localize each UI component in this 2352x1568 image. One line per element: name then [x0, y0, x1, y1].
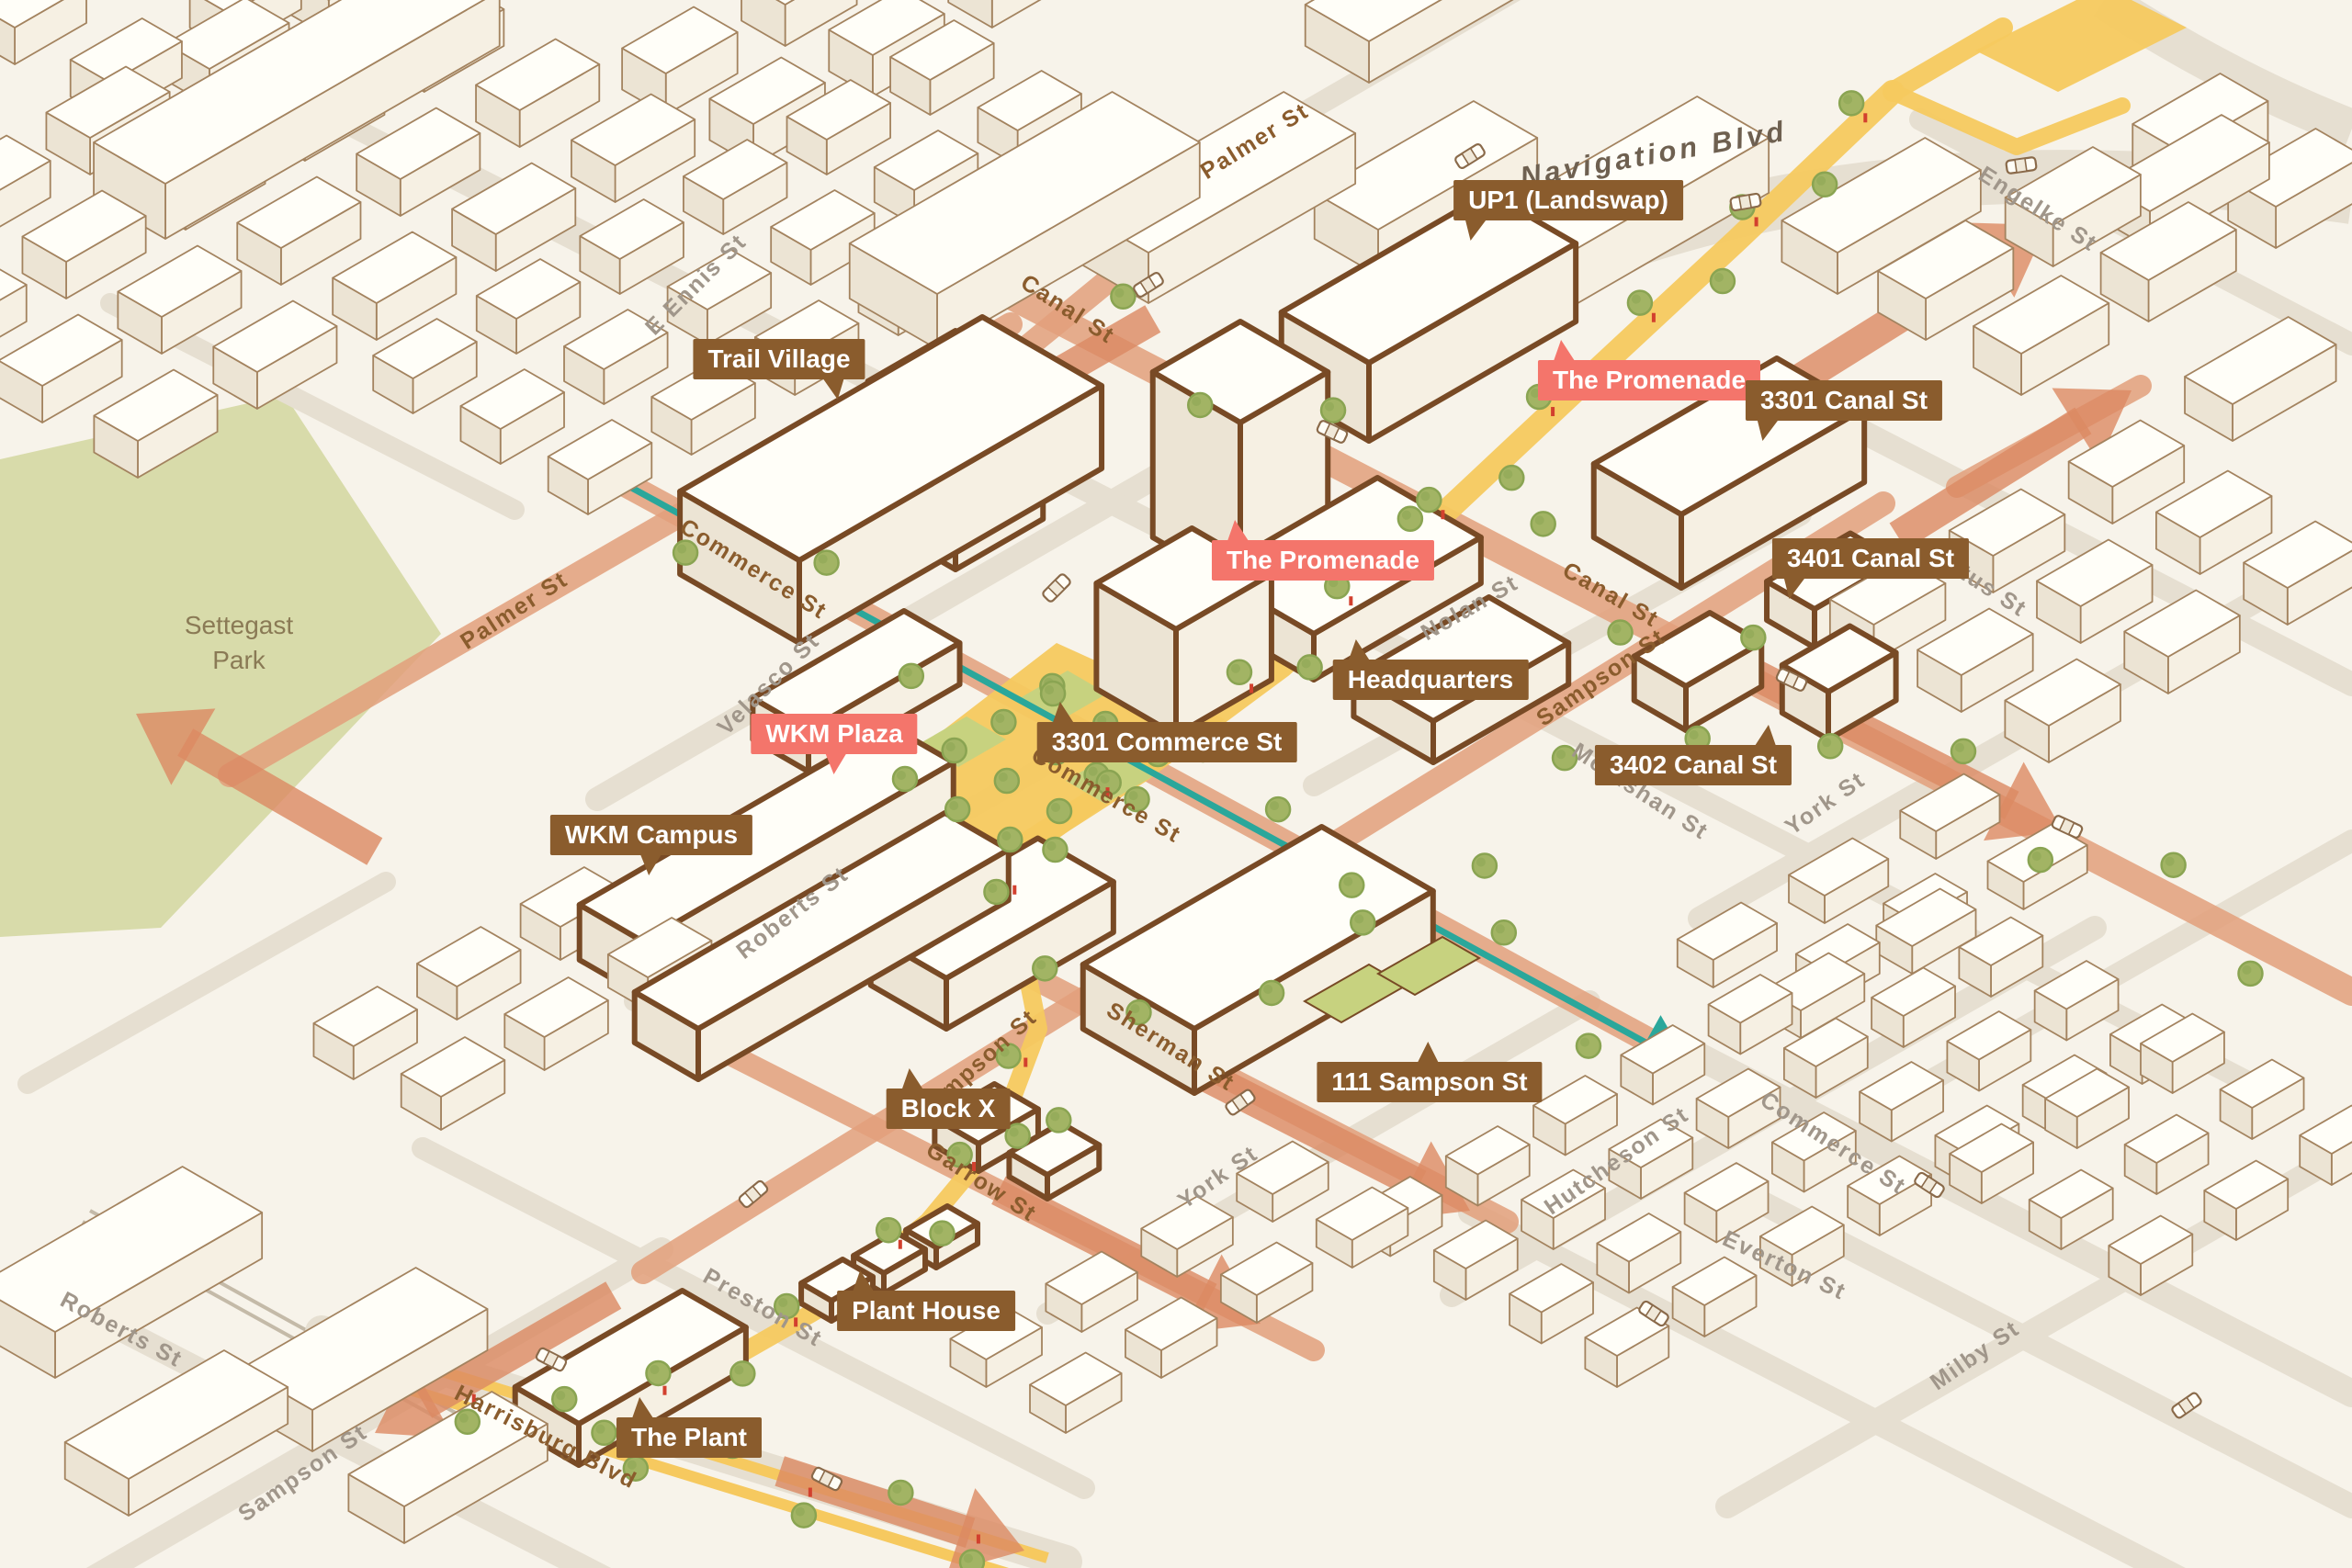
building-label-3301-canal: 3301 Canal St: [1746, 380, 1942, 421]
building-label-promenade-mid: The Promenade: [1212, 540, 1434, 581]
label-text: 3402 Canal St: [1610, 750, 1777, 779]
label-text: 3301 Commerce St: [1052, 728, 1283, 756]
building-label-3402-canal: 3402 Canal St: [1595, 745, 1792, 785]
label-text: WKM Campus: [565, 820, 738, 849]
park-label-line2: Park: [185, 643, 293, 678]
building-label-up1-landswap: UP1 (Landswap): [1453, 180, 1683, 220]
building-label-wkm-plaza: WKM Plaza: [751, 714, 917, 754]
building-label-wkm-campus: WKM Campus: [550, 815, 752, 855]
park-label-line1: Settegast: [185, 608, 293, 643]
label-text: The Plant: [631, 1423, 747, 1451]
masterplan-map: { "map": { "title": "East End district i…: [0, 0, 2352, 1568]
label-text: The Promenade: [1227, 546, 1419, 574]
label-text: 3401 Canal St: [1787, 544, 1954, 572]
label-text: UP1 (Landswap): [1468, 186, 1668, 214]
building-label-the-plant: The Plant: [616, 1417, 762, 1458]
label-text: Headquarters: [1348, 665, 1514, 694]
label-text: The Promenade: [1553, 366, 1746, 394]
building-label-3301-commerce: 3301 Commerce St: [1037, 722, 1297, 762]
label-text: Block X: [901, 1094, 996, 1122]
building-label-3401-canal: 3401 Canal St: [1772, 538, 1969, 579]
label-text: Trail Village: [707, 344, 850, 373]
building-label-111-sampson: 111 Sampson St: [1317, 1062, 1542, 1102]
building-label-block-x: Block X: [887, 1089, 1011, 1129]
label-text: 111 Sampson St: [1331, 1067, 1527, 1096]
building-label-headquarters: Headquarters: [1333, 660, 1529, 700]
building-label-promenade-north: The Promenade: [1538, 360, 1760, 400]
label-text: Plant House: [852, 1296, 1001, 1325]
label-text: 3301 Canal St: [1760, 386, 1928, 414]
park-label-settegast: Settegast Park: [185, 608, 293, 678]
label-text: WKM Plaza: [765, 719, 902, 748]
building-label-trail-village: Trail Village: [693, 339, 865, 379]
building-label-plant-house: Plant House: [837, 1291, 1015, 1331]
